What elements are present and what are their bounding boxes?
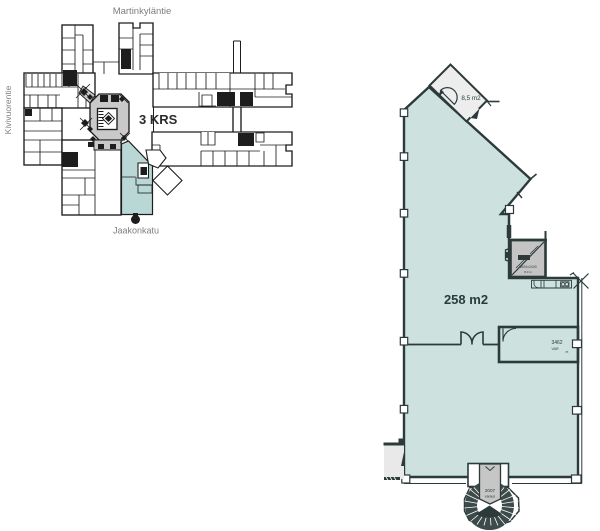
svg-text:Jaakonkatu: Jaakonkatu [113,226,159,236]
svg-text:5600x2400: 5600x2400 [519,265,536,269]
svg-text:258 m2: 258 m2 [444,292,488,307]
svg-text:Martinkyläntie: Martinkyläntie [113,6,172,17]
svg-text:m: m [566,350,569,354]
svg-text:2007: 2007 [485,488,496,493]
svg-text:8,5 m2: 8,5 m2 [461,95,481,102]
svg-text:3 KRS: 3 KRS [139,112,178,127]
svg-text:Kivivuorentie: Kivivuorentie [3,85,13,134]
svg-text:varaus: varaus [485,495,495,499]
svg-text:3462: 3462 [551,340,562,346]
svg-text:8.0 m: 8.0 m [524,270,532,274]
svg-text:VAR: VAR [551,347,559,351]
